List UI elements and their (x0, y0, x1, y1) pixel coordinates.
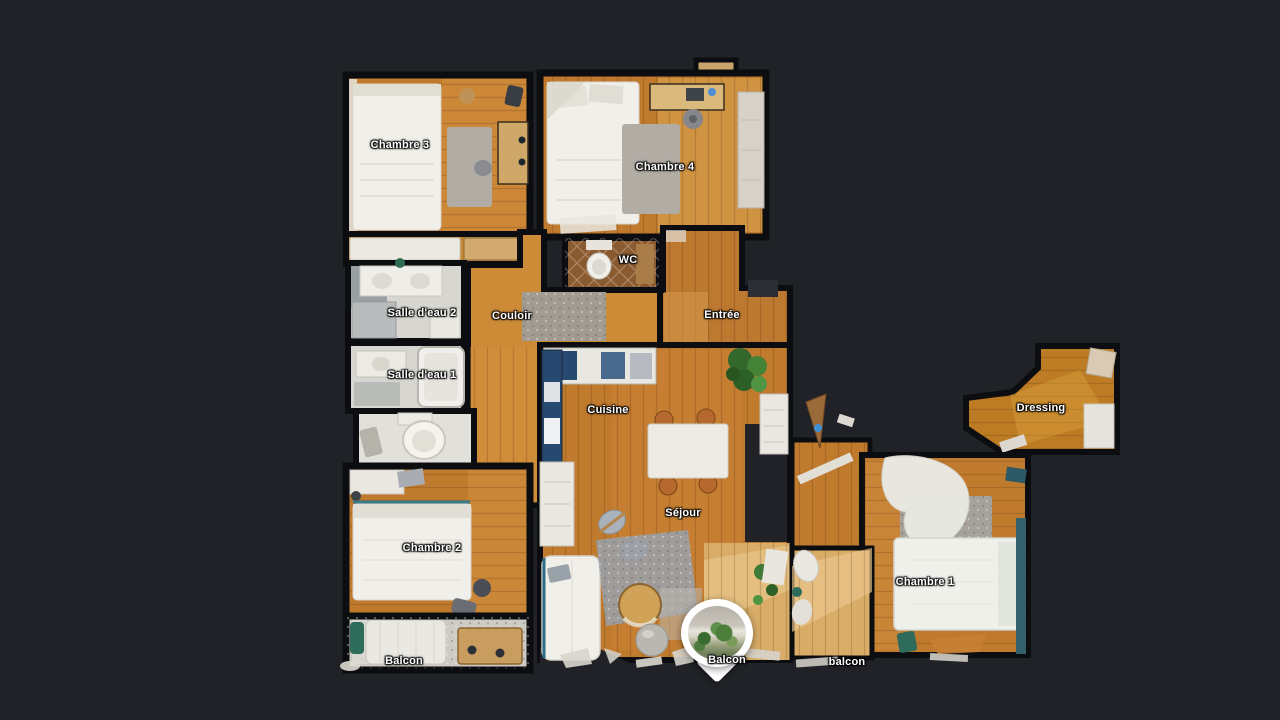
room-salle-deau-1[interactable] (348, 343, 464, 411)
east-corridor-planks (792, 440, 870, 548)
room-sejour[interactable] (540, 345, 790, 666)
appliance (544, 382, 560, 402)
room-entree[interactable] (660, 228, 790, 345)
desk-item (519, 159, 526, 166)
storage-box (1086, 348, 1116, 378)
dining-chair (659, 477, 677, 495)
sofa (542, 556, 600, 660)
floorplan-viewer: Chambre 3 Chambre 4 WC Salle d'eau 2 Cou… (0, 0, 1280, 720)
dark-item (1005, 467, 1027, 484)
counter-left-band (542, 350, 562, 462)
sink-basin (372, 357, 390, 371)
sink-basin (372, 273, 392, 289)
desk-item (519, 137, 526, 144)
cabinet (636, 244, 654, 284)
bed-pillow (353, 84, 441, 96)
balcony-plant (766, 584, 778, 596)
toilet-tank (586, 240, 612, 250)
pouf-highlight (642, 630, 654, 638)
room-wc[interactable] (565, 238, 659, 290)
bed-pillow (588, 84, 623, 104)
blue-item (708, 88, 716, 96)
bed (353, 504, 471, 600)
desk-chair-center (689, 115, 697, 123)
wardrobe (1084, 404, 1114, 448)
counter-blue-cabinet (601, 352, 625, 379)
bed-pillow (353, 504, 471, 518)
table-item (468, 646, 477, 655)
room-chambre-1[interactable] (862, 455, 1028, 655)
kitchen-sink (630, 353, 652, 379)
shoe-cabinet (748, 280, 778, 297)
panorama-preview-photo (688, 606, 746, 660)
balcony-plant (753, 595, 763, 605)
balcony-chair (762, 549, 789, 586)
stool (459, 88, 475, 104)
room-salle-deau-2[interactable] (348, 258, 464, 341)
blue-item (814, 424, 822, 432)
east-corridor[interactable] (792, 394, 870, 548)
laundry-unit (430, 308, 460, 338)
dining-table (648, 424, 728, 478)
bed-mattress (353, 84, 441, 230)
room-dressing[interactable] (966, 346, 1117, 453)
laptop (686, 88, 704, 101)
wardrobe (350, 238, 460, 260)
chair (474, 160, 492, 176)
toilet-seat (592, 259, 606, 275)
dresser (350, 470, 404, 494)
sink-basin (410, 273, 430, 289)
headboard (1016, 518, 1026, 654)
desk (498, 122, 528, 184)
bathtub-inner (424, 353, 458, 401)
entree-floor-light (664, 292, 708, 342)
floorplan-canvas (0, 0, 1280, 720)
room-chambre-3[interactable] (346, 75, 530, 264)
balcony-plant (792, 587, 802, 597)
dark-item (351, 491, 361, 501)
room-balcon-left[interactable] (346, 616, 530, 670)
doormat (666, 230, 686, 242)
balcony-table (458, 628, 522, 664)
plant-pot (350, 622, 364, 654)
bed (353, 84, 441, 230)
rug (622, 124, 680, 214)
pouf (636, 624, 668, 656)
floor-mat (354, 382, 400, 406)
shower (352, 302, 396, 338)
plant-small (395, 258, 405, 268)
sideboard (760, 394, 788, 454)
scan-fragment (837, 414, 855, 428)
table-item (496, 649, 505, 658)
bench (896, 631, 917, 654)
appliance (544, 418, 560, 444)
couloir-stone-texture (522, 292, 606, 341)
room-chambre-2[interactable] (346, 466, 530, 618)
room-wc-2[interactable] (356, 411, 474, 467)
room-balcon-right[interactable] (790, 547, 872, 658)
dark-item (473, 579, 491, 597)
plant-foliage (726, 367, 740, 381)
dresser (464, 238, 526, 260)
debris (340, 661, 360, 671)
bed (894, 538, 1022, 630)
toilet-seat (412, 430, 436, 452)
room-chambre-4[interactable] (540, 60, 766, 237)
bed-mattress (353, 504, 471, 600)
plant-foliage (751, 376, 767, 392)
